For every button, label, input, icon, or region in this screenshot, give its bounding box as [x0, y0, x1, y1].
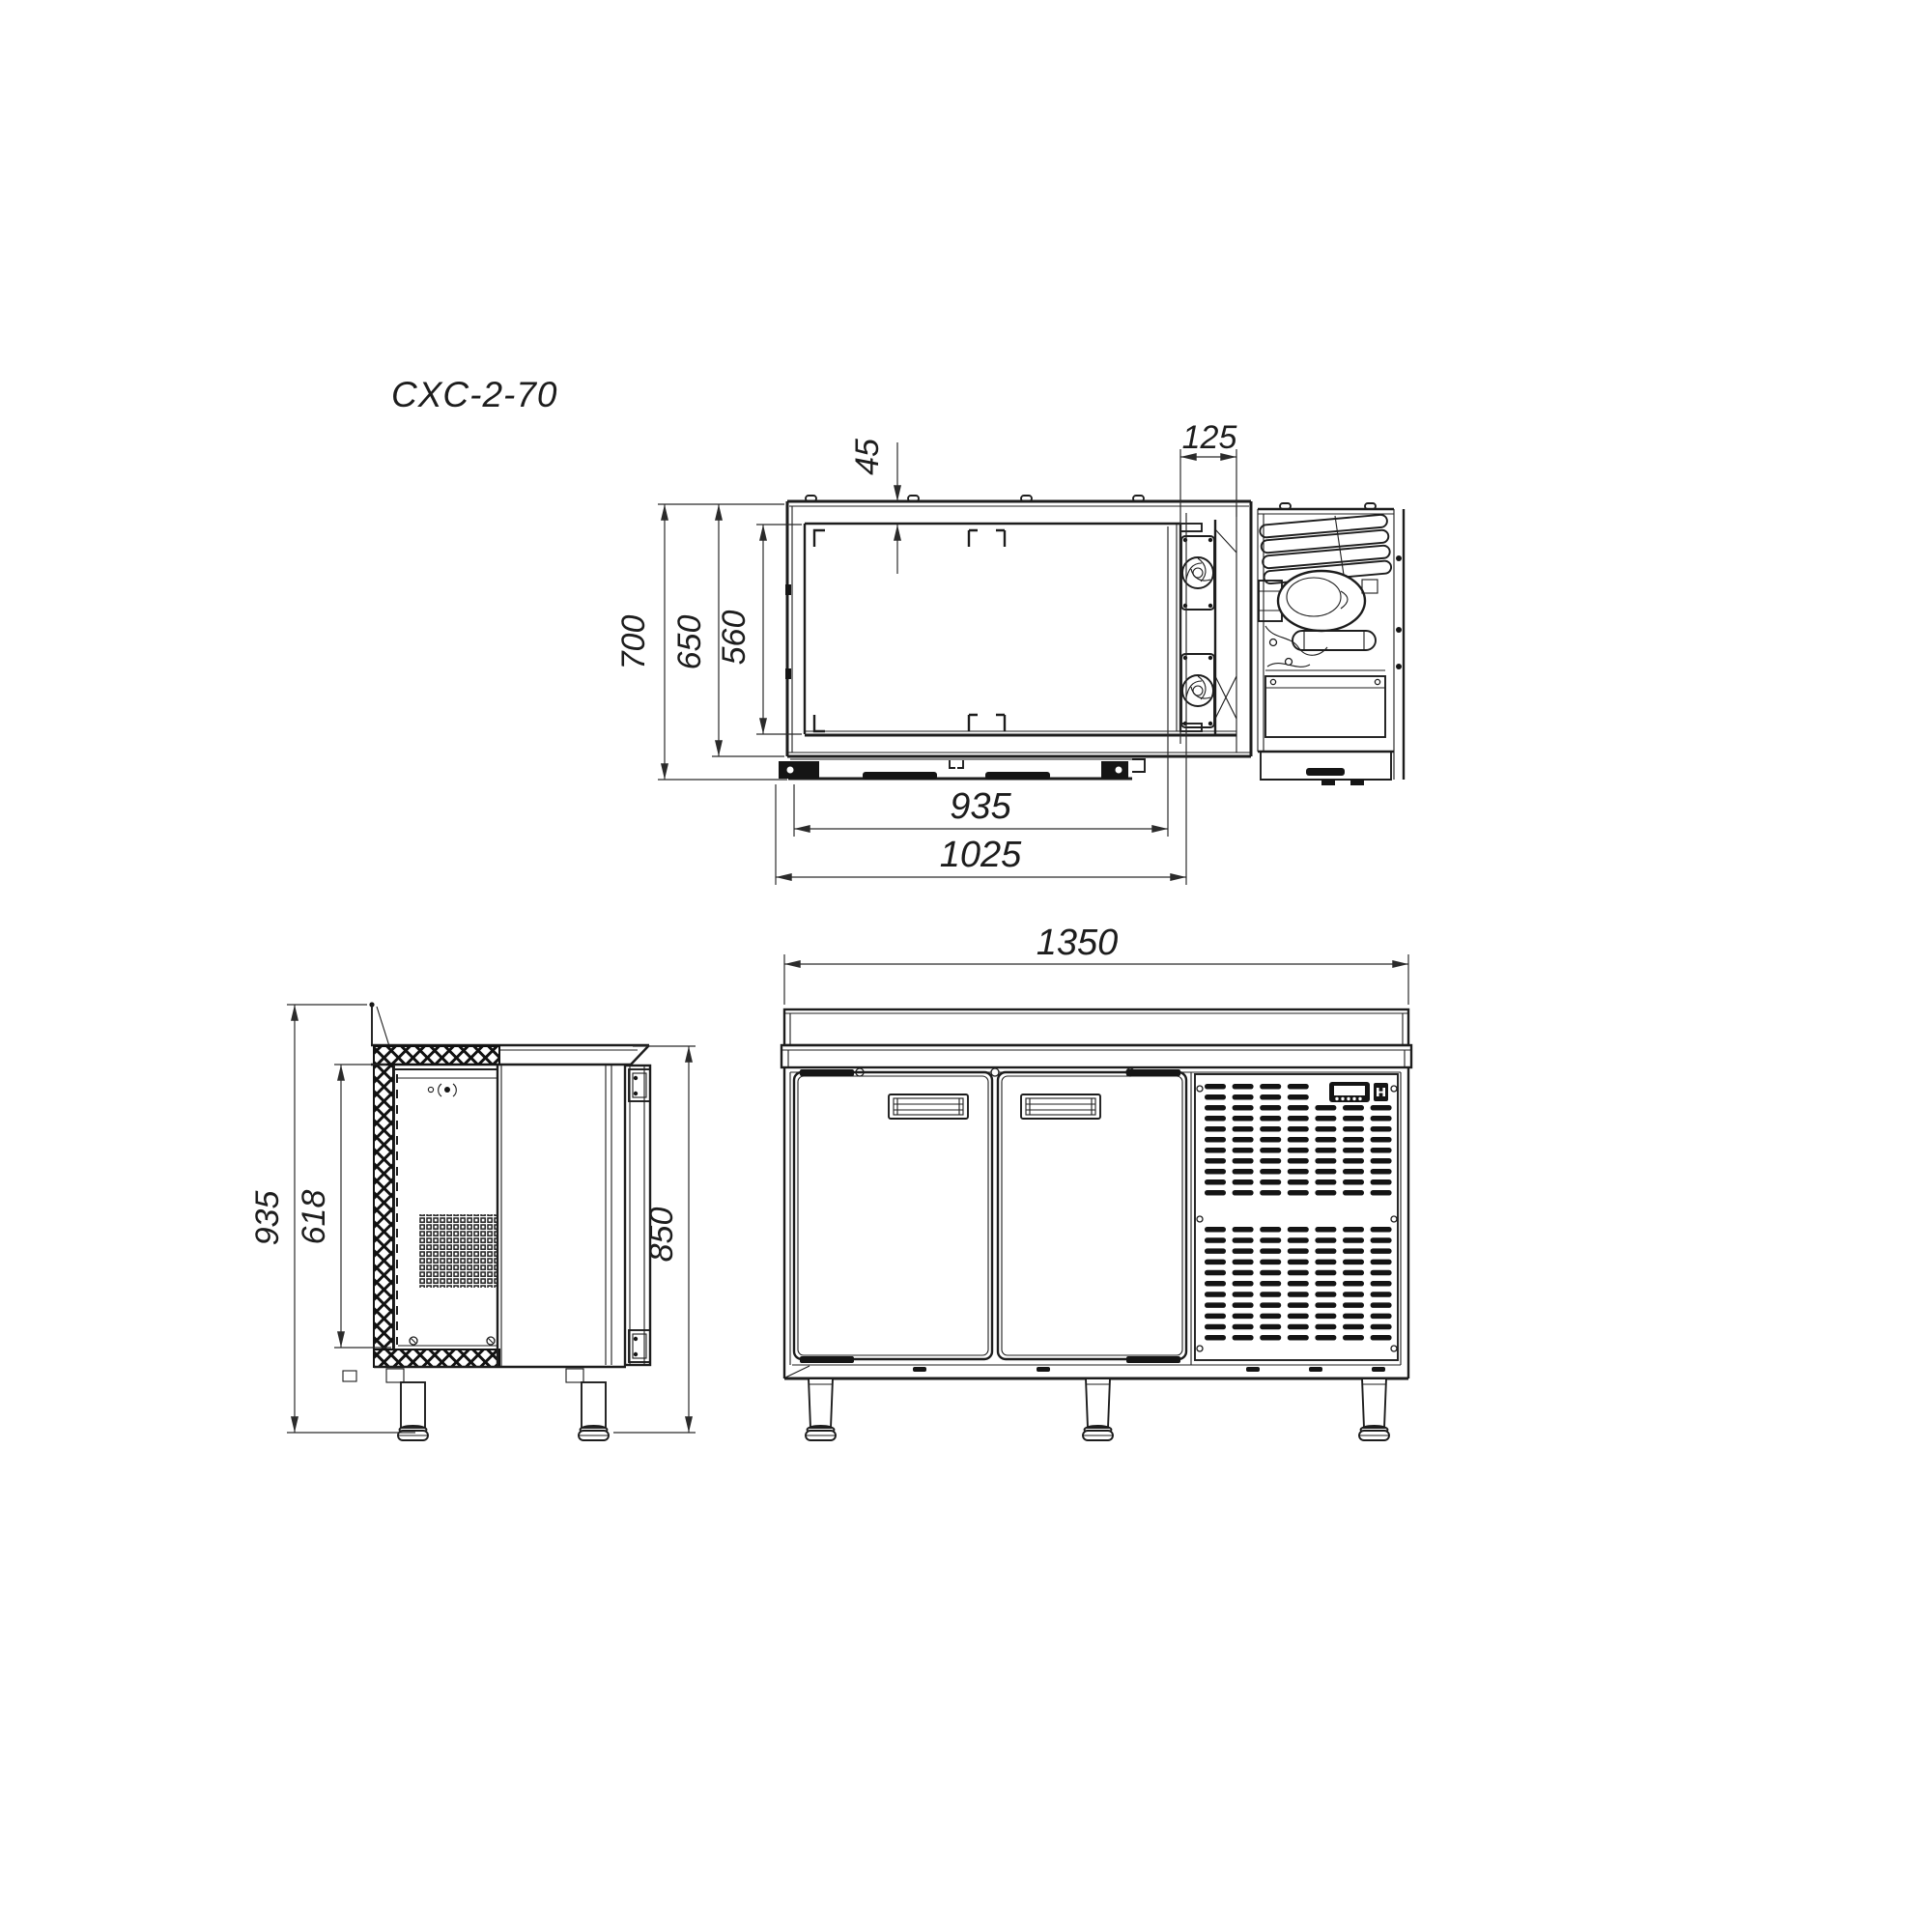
wall-clip: [785, 668, 791, 679]
technical-drawing-page: CXC-2-70: [0, 0, 1932, 1932]
dim-label-45: 45: [849, 439, 886, 475]
dim-label-1350: 1350: [1037, 923, 1119, 963]
door-hinge-strip: [800, 1069, 854, 1076]
model-title: CXC-2-70: [391, 375, 558, 414]
door-hinge-strip: [800, 1356, 854, 1363]
dim-label-618: 618: [296, 1190, 332, 1245]
background: [0, 0, 1932, 1932]
power-switch[interactable]: [1374, 1083, 1388, 1101]
dim-label-935-height: 935: [249, 1191, 286, 1246]
door-hinge-strip: [1126, 1069, 1180, 1076]
adjustable-leg: [1083, 1378, 1113, 1440]
perforated-grille: [418, 1214, 497, 1288]
dim-label-850: 850: [643, 1207, 680, 1263]
base-vent-slot: [1306, 768, 1345, 776]
door-hinge: [779, 761, 819, 779]
door-handle-plan: [985, 772, 1050, 780]
wall-clip: [785, 584, 791, 595]
base-foot: [1350, 780, 1364, 785]
temperature-display[interactable]: [1329, 1082, 1370, 1102]
dim-label-650: 650: [671, 615, 708, 670]
dim-label-125: 125: [1182, 419, 1237, 456]
door-handle-plan: [863, 772, 937, 780]
base-foot: [1321, 780, 1335, 785]
dim-label-935-width: 935: [950, 786, 1011, 827]
dim-label-560: 560: [716, 611, 753, 666]
adjustable-leg: [806, 1378, 836, 1440]
dim-label-700: 700: [615, 615, 652, 670]
adjustable-leg: [1359, 1378, 1389, 1440]
door-hinge: [1101, 761, 1128, 779]
dim-label-1025: 1025: [940, 835, 1022, 875]
door-hinge-strip: [1126, 1356, 1180, 1363]
drawing-canvas: CXC-2-70: [0, 0, 1932, 1932]
